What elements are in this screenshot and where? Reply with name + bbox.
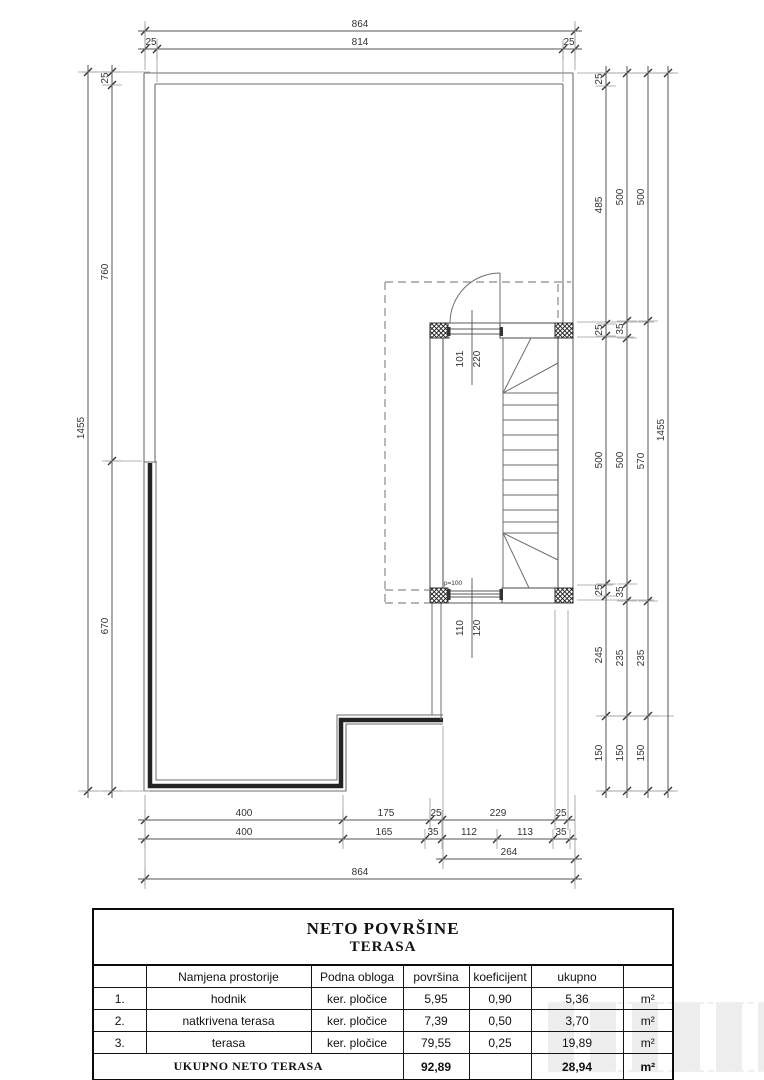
dim-label: 101: [455, 350, 466, 367]
dim-label: 245: [594, 646, 605, 663]
dim-label: 150: [636, 744, 647, 761]
dim-label: 235: [615, 649, 626, 666]
dim-label: 25: [430, 808, 442, 819]
table-cell: m²: [623, 1010, 673, 1032]
table-cell: m²: [623, 1032, 673, 1054]
areas-table: NETO POVRŠINE TERASA Namjena prostorijeP…: [92, 908, 674, 1080]
table-cell: m²: [623, 988, 673, 1010]
dim-label: 229: [490, 808, 507, 819]
dim-label: 400: [236, 808, 253, 819]
dim-label: 570: [636, 452, 647, 469]
dim-label: 864: [352, 19, 369, 30]
dim-label: 864: [352, 867, 369, 878]
table-cell: ker. pločice: [311, 988, 403, 1010]
dim-label: 670: [100, 617, 111, 634]
dim-label: 1455: [656, 418, 667, 441]
witness-lines: [82, 24, 674, 885]
dim-label: 165: [376, 827, 393, 838]
table-cell: 0,50: [469, 1010, 531, 1032]
table-header-cell: Podna obloga: [311, 965, 403, 988]
table-header-cell: [93, 965, 146, 988]
dim-label: 220: [472, 350, 483, 367]
dim-label: 113: [517, 827, 533, 838]
footer-label: UKUPNO NETO TERASA: [93, 1054, 403, 1080]
dim-label: 400: [236, 827, 253, 838]
dim-label: 25: [563, 37, 575, 48]
table-cell: 7,39: [403, 1010, 469, 1032]
dim-label: 235: [636, 649, 647, 666]
table-cell: 1.: [93, 988, 146, 1010]
table-cell: 0,90: [469, 988, 531, 1010]
table-cell: 5,95: [403, 988, 469, 1010]
table-header-row: Namjena prostorijePodna oblogapovršinako…: [93, 965, 673, 988]
table-cell: hodnik: [146, 988, 311, 1010]
dim-label: 35: [555, 827, 567, 838]
dim-label: 760: [100, 263, 111, 280]
table-cell: ker. pločice: [311, 1032, 403, 1054]
dim-label: 35: [615, 586, 626, 598]
table-cell: 79,55: [403, 1032, 469, 1054]
table-cell: ker. pločice: [311, 1010, 403, 1032]
table-title-line1: NETO POVRŠINE: [94, 919, 672, 939]
table-header-cell: površina: [403, 965, 469, 988]
dim-label: 120: [472, 619, 483, 636]
footer-ukupno: 28,94: [531, 1054, 623, 1080]
stair-structure-walls: [430, 323, 573, 603]
dim-label: 25: [594, 324, 605, 336]
window-symbol: [447, 589, 503, 600]
dim-label: 500: [615, 451, 626, 468]
floor-plan-page: 8642581425400175252292540016535112113352…: [0, 0, 764, 1080]
dim-label: 110: [455, 620, 466, 636]
dim-label: 500: [636, 188, 647, 205]
table-row: 2.natkrivena terasaker. pločice7,390,503…: [93, 1010, 673, 1032]
table-title: NETO POVRŠINE TERASA: [93, 909, 673, 965]
footer-koeficijent: [469, 1054, 531, 1080]
dim-label: 112: [461, 827, 477, 838]
dim-label: 175: [378, 808, 395, 819]
dim-label: 25: [100, 72, 111, 84]
dim-label: 264: [501, 847, 518, 858]
dimension-lines: 8642581425400175252292540016535112113352…: [76, 19, 678, 889]
dim-label: 1455: [76, 416, 87, 439]
table-header-cell: ukupno: [531, 965, 623, 988]
wall-hatch-blocks: [430, 323, 573, 603]
table-row: 3.terasaker. pločice79,550,2519,89m²: [93, 1032, 673, 1054]
dim-label: 35: [615, 323, 626, 335]
table-cell: 0,25: [469, 1032, 531, 1054]
dim-label: 25: [555, 808, 567, 819]
dim-label: 35: [427, 827, 439, 838]
parapet-walls: [144, 462, 443, 791]
table-cell: 3.: [93, 1032, 146, 1054]
dim-label: 500: [594, 451, 605, 468]
table-title-row: NETO POVRŠINE TERASA: [93, 909, 673, 965]
table-cell: 2.: [93, 1010, 146, 1032]
table-footer-row: UKUPNO NETO TERASA 92,89 28,94 m²: [93, 1054, 673, 1080]
dim-label: 814: [352, 37, 369, 48]
table-cell: terasa: [146, 1032, 311, 1054]
dim-label: 25: [594, 73, 605, 85]
table-row: 1.hodnikker. pločice5,950,905,36m²: [93, 988, 673, 1010]
table-cell: 19,89: [531, 1032, 623, 1054]
table-header-cell: Namjena prostorije: [146, 965, 311, 988]
dim-label: 485: [594, 196, 605, 213]
footer-unit: m²: [623, 1054, 673, 1080]
table-header-cell: [623, 965, 673, 988]
footer-povrsina: 92,89: [403, 1054, 469, 1080]
staircase: [503, 338, 558, 588]
table-cell: 5,36: [531, 988, 623, 1010]
table-header-cell: koeficijent: [469, 965, 531, 988]
dim-label: 150: [615, 744, 626, 761]
building-outline: [144, 73, 573, 791]
dim-label: 25: [594, 584, 605, 596]
table-cell: 3,70: [531, 1010, 623, 1032]
dim-label: 25: [145, 37, 157, 48]
table-cell: natkrivena terasa: [146, 1010, 311, 1032]
table-title-line2: TERASA: [94, 939, 672, 956]
dim-label: 150: [594, 744, 605, 761]
dim-label: 500: [615, 188, 626, 205]
dim-label: p=100: [444, 580, 463, 587]
